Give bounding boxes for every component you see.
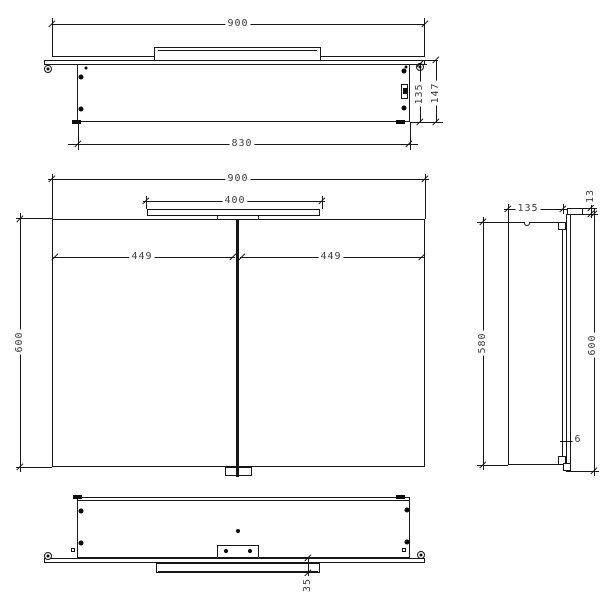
screw-dot xyxy=(405,540,410,545)
screw-center xyxy=(420,554,423,557)
screw-dot xyxy=(405,508,410,513)
screw-dot xyxy=(79,541,84,546)
screw-dot xyxy=(236,529,240,533)
bottom-view-body-inner xyxy=(78,500,409,501)
dim-bottom-light-offset: 35 xyxy=(303,576,313,594)
wall-bracket xyxy=(396,495,405,499)
screw-dot xyxy=(79,509,84,514)
screw-socket xyxy=(71,548,75,552)
screw-center xyxy=(47,555,50,558)
bracket-screw xyxy=(224,549,228,553)
screw-socket xyxy=(402,548,406,552)
technical-drawing-canvas: 900 830 135 147 xyxy=(0,0,613,602)
bottom-view-light-bar-inner xyxy=(158,571,318,572)
wall-bracket xyxy=(73,495,82,499)
bottom-view: 35 xyxy=(0,0,613,602)
bracket-screw xyxy=(248,549,252,553)
